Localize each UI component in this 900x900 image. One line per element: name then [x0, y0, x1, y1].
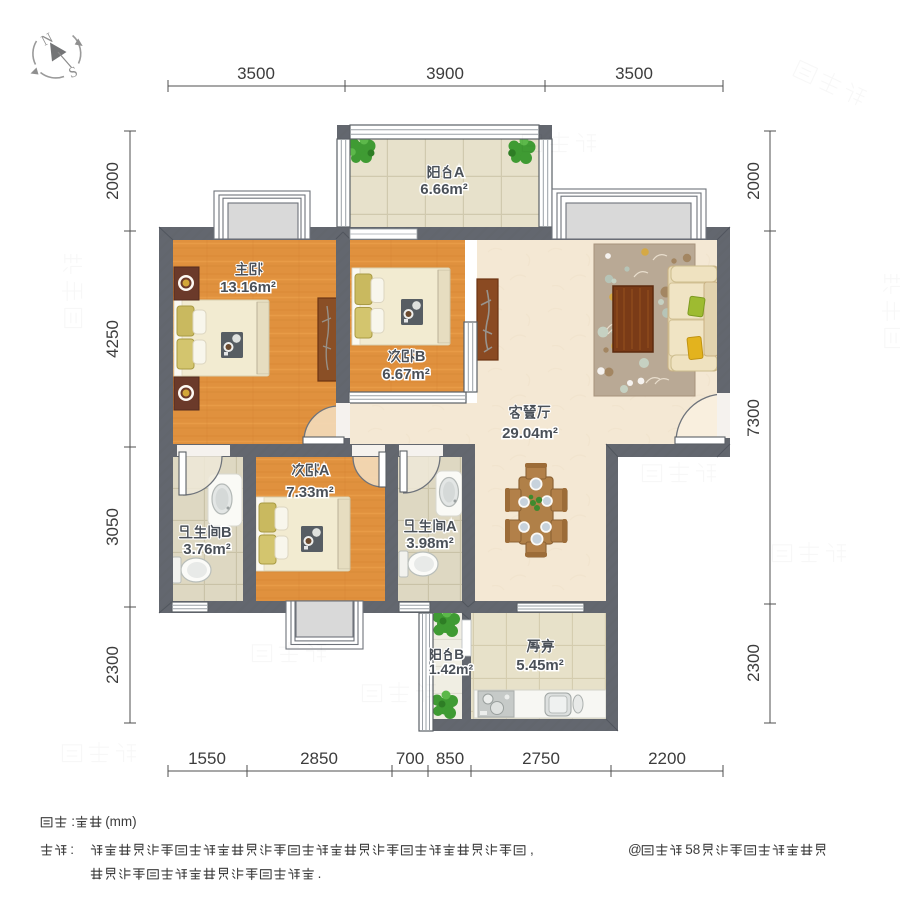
svg-text:2000: 2000	[744, 162, 763, 200]
svg-text::: :	[71, 814, 75, 829]
svg-text:,: ,	[530, 842, 534, 857]
svg-text:58: 58	[685, 842, 700, 857]
svg-text:2200: 2200	[648, 749, 686, 768]
svg-text:A: A	[454, 165, 465, 181]
svg-text:2750: 2750	[522, 749, 560, 768]
svg-text::: :	[70, 842, 74, 857]
svg-text:29.04m²: 29.04m²	[502, 425, 558, 442]
svg-text:7300: 7300	[744, 399, 763, 437]
svg-text:3500: 3500	[615, 64, 653, 83]
svg-text:6.67m²: 6.67m²	[382, 366, 430, 383]
svg-text:5.45m²: 5.45m²	[516, 657, 564, 674]
svg-text:B: B	[454, 647, 464, 662]
svg-text:B: B	[221, 525, 232, 541]
svg-text:3.98m²: 3.98m²	[406, 535, 454, 552]
svg-text:7.33m²: 7.33m²	[286, 484, 334, 501]
svg-text:3050: 3050	[103, 508, 122, 546]
svg-text:@: @	[628, 842, 642, 857]
svg-text:2300: 2300	[744, 644, 763, 682]
svg-text:700: 700	[396, 749, 424, 768]
svg-text:A: A	[446, 519, 457, 535]
svg-text:3900: 3900	[426, 64, 464, 83]
svg-text:2300: 2300	[103, 646, 122, 684]
svg-text:850: 850	[436, 749, 464, 768]
svg-text:1550: 1550	[188, 749, 226, 768]
svg-text:(mm): (mm)	[105, 814, 136, 829]
svg-text:.: .	[318, 866, 322, 881]
svg-text:3500: 3500	[237, 64, 275, 83]
svg-text:2850: 2850	[300, 749, 338, 768]
svg-text:3.76m²: 3.76m²	[183, 541, 231, 558]
svg-text:4250: 4250	[103, 320, 122, 358]
svg-text:6.66m²: 6.66m²	[420, 181, 468, 198]
svg-text:13.16m²: 13.16m²	[220, 279, 276, 296]
svg-text:2000: 2000	[103, 162, 122, 200]
svg-text:B: B	[415, 349, 426, 365]
svg-text:A: A	[319, 463, 330, 479]
svg-text:1.42m²: 1.42m²	[429, 661, 474, 677]
